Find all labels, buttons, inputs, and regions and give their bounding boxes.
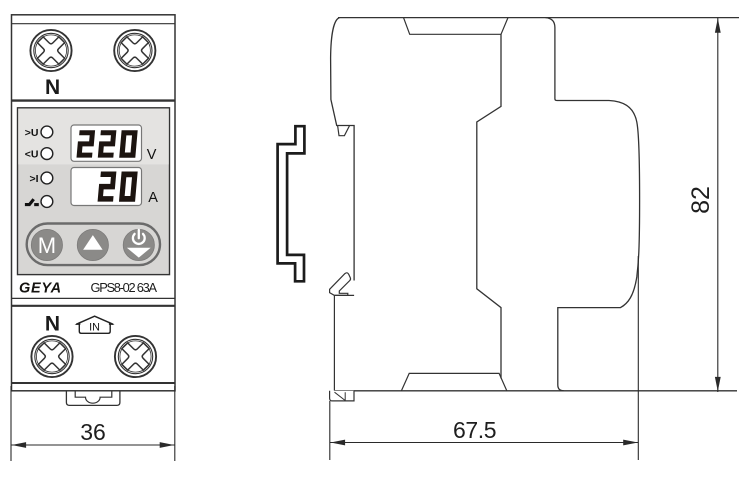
svg-text:A: A — [148, 190, 158, 206]
svg-text:>I: >I — [29, 173, 38, 185]
svg-text:>U: >U — [25, 127, 39, 139]
svg-text:M: M — [38, 233, 56, 258]
svg-text:GPS8-02 63A: GPS8-02 63A — [91, 280, 158, 295]
svg-text:V: V — [147, 147, 157, 163]
svg-text:67.5: 67.5 — [453, 417, 496, 443]
svg-text:<U: <U — [25, 148, 39, 160]
svg-text:IN: IN — [89, 322, 100, 334]
svg-text:GEYA: GEYA — [19, 280, 62, 296]
svg-text:82: 82 — [687, 186, 715, 214]
svg-text:36: 36 — [80, 419, 106, 445]
svg-text:N: N — [45, 76, 60, 99]
svg-text:N: N — [45, 313, 60, 336]
